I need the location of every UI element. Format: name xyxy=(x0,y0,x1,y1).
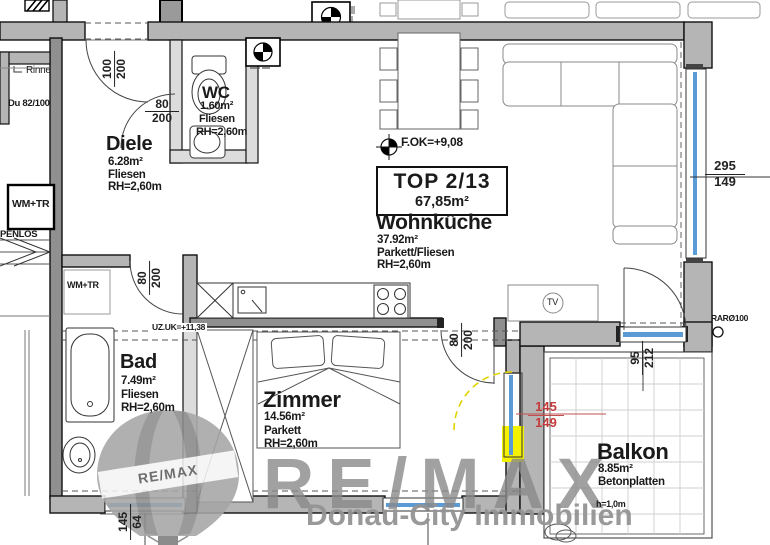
room-height-wohnkueche: RH=2,60m xyxy=(377,259,431,271)
penlos-label: PENLOS xyxy=(0,230,37,240)
room-floor-wc: Fliesen xyxy=(199,114,235,126)
room-floor-diele: Fliesen xyxy=(108,169,146,181)
dim-changed-window: 145149 xyxy=(528,400,564,430)
watermark-company: Donau-City Immobilien xyxy=(306,499,633,533)
room-name-bad: Bad xyxy=(120,352,157,374)
room-floor-zimmer: Parkett xyxy=(264,425,301,437)
dim-bad-door: 80200 xyxy=(136,261,164,295)
floor-plan: RE/MAX RE/MAX Donau-City Immobilien Rinn… xyxy=(0,0,770,545)
room-name-balkon: Balkon xyxy=(597,440,669,464)
room-floor-balkon: Betonplatten xyxy=(598,476,665,488)
room-name-zimmer: Zimmer xyxy=(263,388,341,412)
unit-total-area: 67,85m² xyxy=(378,194,506,210)
dim-wc-door: 80200 xyxy=(145,98,179,126)
rar-label: RARØ100 xyxy=(711,314,748,323)
room-area-wc: 1.60m² xyxy=(200,101,233,113)
rinne-label: Rinne xyxy=(26,66,51,77)
dim-zimmer-door: 80200 xyxy=(448,323,476,357)
room-area-balkon: 8.85m² xyxy=(598,463,633,475)
dim-balcony-door: 95212 xyxy=(629,341,657,375)
washer-dryer-label-bad: WM+TR xyxy=(67,281,99,291)
room-height-zimmer: RH=2,60m xyxy=(264,438,318,450)
dim-bad-window: 14564 xyxy=(117,504,145,540)
room-floor-wohnkueche: Parkett/Fliesen xyxy=(377,247,454,259)
room-area-zimmer: 14.56m² xyxy=(264,411,305,423)
room-height-diele: RH=2,60m xyxy=(108,181,162,193)
washer-dryer-label: WM+TR xyxy=(12,199,49,210)
du-label: Du 82/100 xyxy=(8,99,50,109)
unit-number: TOP 2/13 xyxy=(378,170,506,194)
unit-title-box: TOP 2/13 67,85m² xyxy=(376,166,508,216)
room-area-bad: 7.49m² xyxy=(121,375,156,387)
beam-label: UZ.UK=+11,38 xyxy=(150,323,207,332)
dim-entrance-door: 100200 xyxy=(101,51,129,87)
room-name-wohnkueche: Wohnküche xyxy=(376,212,492,235)
room-railing-height-balkon: h=1,0m xyxy=(596,500,625,510)
room-height-bad: RH=2,60m xyxy=(121,402,175,414)
level-label: F.OK=+9,08 xyxy=(401,136,463,149)
room-area-wohnkueche: 37.92m² xyxy=(377,234,418,246)
room-floor-bad: Fliesen xyxy=(121,389,159,401)
room-height-wc: RH=2,60m xyxy=(196,127,247,139)
room-name-diele: Diele xyxy=(106,134,152,156)
tv-label: TV xyxy=(547,298,558,308)
dim-right-window: 295149 xyxy=(705,159,745,189)
room-area-diele: 6.28m² xyxy=(108,156,143,168)
